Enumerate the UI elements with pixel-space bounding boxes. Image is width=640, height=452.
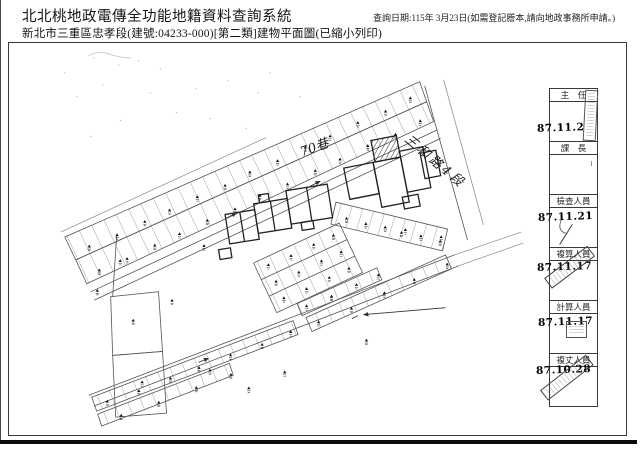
scan-speckle [138,60,139,61]
scan-speckle [160,68,161,69]
parcel-number-mark [365,339,368,345]
parcel-number-mark [247,386,250,392]
scan-speckle [176,112,177,113]
section-label: 檢查人員 [550,195,597,208]
query-date-note: 查詢日期:115年 3月23日(如需登記謄本,請向地政事務所申請。) [373,11,615,24]
scan-speckle [210,118,211,119]
scan-speckle [93,57,94,58]
approval-section-inspector: 檢查人員 87.11.21 [550,195,597,248]
scan-speckle [76,96,77,97]
page-left-edge [0,0,1,444]
parcel-number-mark [170,299,173,305]
system-title: 北北桃地政電傳全功能地籍資料查詢系統 [22,5,292,26]
cadastral-map: 70巷 三和路4段 [9,43,626,435]
scan-speckle [196,88,197,89]
scan-speckle [228,80,229,81]
approval-section-director: 主 任 87.11.2 [550,89,597,142]
scan-speckle [90,136,91,137]
scan-speckle [150,92,151,93]
parcel-subtitle: 新北市三重區忠孝段(建號:04233-000)[第二類]建物平面圖(已縮小列印) [22,25,382,41]
parcel-number-mark [132,319,135,325]
scan-speckle [118,64,119,65]
scan-speckle [64,72,65,73]
scan-speckle [269,72,270,73]
pencil-squiggle [89,52,131,58]
parcel-number-mark [96,289,99,295]
scan-speckle [246,128,247,129]
approval-section-recheck: 複算人員 87.11.17 [550,248,597,301]
map-frame: 70巷 三和路4段 [8,42,627,436]
director-seal-stamp [583,90,599,142]
scan-speckle [120,120,121,121]
approval-section-chief: 課 長 [550,142,597,195]
square-seal-stamp [566,321,587,338]
approval-date: 87.11.2 [537,121,585,135]
parcel-number-mark [283,371,286,377]
stray-mark [587,161,592,166]
scan-speckle [299,96,300,97]
scan-speckle [102,84,103,85]
approval-strip: 主 任 87.11.2 課 長 檢查人員 87.11.21 複算人員 87.11… [549,88,598,407]
approval-section-calculator: 計算人員 87.11.17 [550,301,597,354]
scan-speckle [257,92,258,93]
section-label: 課 長 [550,142,597,155]
approval-section-surveyor: 複丈人員 87.10.28 [550,354,597,406]
section-label: 計算人員 [550,301,597,314]
bottom-scan-bar [0,440,637,444]
